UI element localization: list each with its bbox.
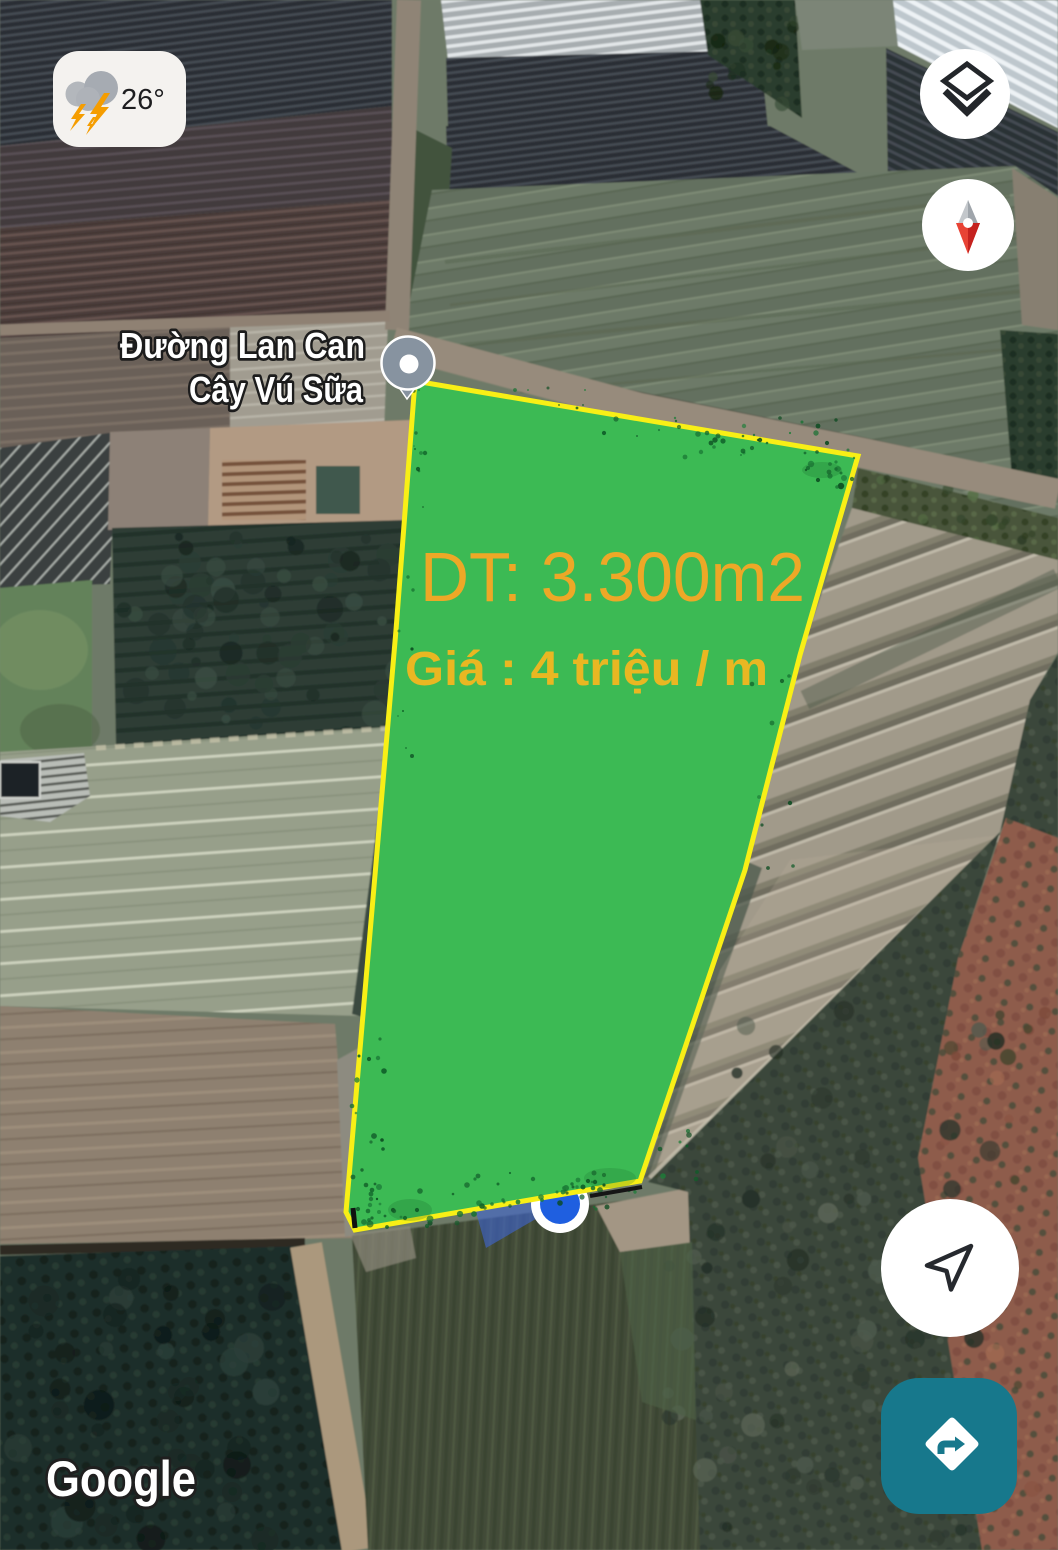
svg-text:Google: Google [46, 1451, 196, 1507]
svg-text:Đường Lan Can: Đường Lan Can [120, 325, 365, 366]
svg-text:DT: 3.300m2: DT: 3.300m2 [420, 538, 805, 616]
svg-text:Cây Vú Sữa: Cây Vú Sữa [189, 369, 364, 410]
svg-text:Giá : 4 triệu / m: Giá : 4 triệu / m [405, 643, 768, 696]
svg-text:26°: 26° [121, 84, 165, 116]
